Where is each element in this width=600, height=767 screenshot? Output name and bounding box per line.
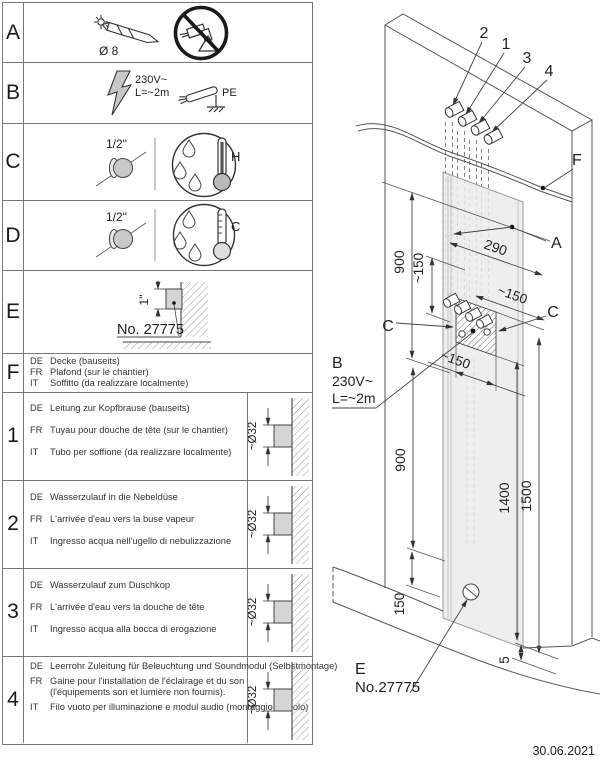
diameter-label: ~Ø32 <box>248 422 259 450</box>
diameter-label: ~Ø32 <box>248 686 259 714</box>
no-power-tool-icon <box>168 4 234 62</box>
lang-de: DE <box>30 403 50 413</box>
wall-hatch <box>181 282 208 337</box>
cable-icon <box>177 85 218 105</box>
lang-it: IT <box>30 624 50 634</box>
dim-900-top: 900 <box>391 250 407 274</box>
row-4-fr2: (l'équipements son et lumière non fourni… <box>50 687 225 697</box>
row-divider <box>2 62 312 63</box>
row-label-1: 1 <box>2 424 24 448</box>
one-inch-label: 1" <box>137 295 151 306</box>
pipe-stub-icon-1: ~Ø32 <box>248 396 310 478</box>
dim-150-top: ~150 <box>411 253 426 283</box>
lang-it: IT <box>30 702 50 712</box>
row-4-fr: Gaine pour l'installation de l'éclairage… <box>50 676 244 686</box>
callout-b-volt: 230V~ <box>332 373 373 389</box>
lang-de: DE <box>30 661 50 671</box>
lang-de: DE <box>30 580 50 590</box>
electric-supply-icon: 230V~ L=~2m PE <box>100 68 250 120</box>
pipe-stub-icon-4: ~Ø32 <box>248 660 310 742</box>
callout-b-length: L=~2m <box>332 390 376 406</box>
drill-diameter-label: Ø 8 <box>99 44 119 58</box>
row-3-de: Wasserzulauf zum Duschkop <box>50 580 170 590</box>
lang-it: IT <box>30 378 50 388</box>
lightning-icon <box>108 71 131 115</box>
pipe-fitting-icon <box>96 152 146 186</box>
callout-3: 3 <box>523 50 532 67</box>
installation-diagram: 2 1 3 4 F A 290 ~150 C <box>310 0 600 767</box>
lang-it: IT <box>30 447 50 457</box>
hot-label: H <box>231 149 240 164</box>
manual-page: A B C D E F 1 2 3 4 Ø 8 <box>0 0 600 767</box>
floor-hatch <box>123 342 211 349</box>
dim-1400: 1400 <box>496 482 512 513</box>
row-1-de: Leitung zur Kopfbrause (bauseits) <box>50 403 190 413</box>
row-label-d: D <box>2 224 24 248</box>
ceiling-anchor-icon: 1" No. 27775 <box>115 280 255 352</box>
pipe-stub-icon-3: ~Ø32 <box>248 572 310 654</box>
callout-a: A <box>551 235 562 252</box>
row-divider <box>2 392 312 393</box>
revision-date: 30.06.2021 <box>480 744 595 758</box>
callout-4: 4 <box>545 63 554 80</box>
callout-e: E <box>355 661 366 678</box>
callout-e-number: No.27775 <box>355 679 420 696</box>
row-2-fr: L'arrivée d'eau vers la buse vapeur <box>50 514 194 524</box>
row-label-3: 3 <box>2 600 24 624</box>
lang-fr: FR <box>30 514 50 524</box>
cold-label: C <box>231 219 240 234</box>
lang-fr: FR <box>30 367 50 377</box>
callout-f: F <box>572 152 582 169</box>
row-label-4: 4 <box>2 688 24 712</box>
callout-1: 1 <box>502 36 511 53</box>
row-divider <box>2 353 312 354</box>
lang-it: IT <box>30 536 50 546</box>
shower-panel <box>443 172 523 648</box>
dim-5: 5 <box>497 656 512 664</box>
pe-label: PE <box>222 87 237 99</box>
row-3-it: Ingresso acqua alla bocca di erogazione <box>50 624 216 634</box>
lang-fr: FR <box>30 602 50 612</box>
row-label-2: 2 <box>2 512 24 536</box>
row-1-it: Tubo per soffione (da realizzare localme… <box>50 447 231 457</box>
fitting-size-label: 1/2" <box>106 210 127 224</box>
row-f-fr: Plafond (sur le chantier) <box>50 367 149 377</box>
row-divider <box>2 270 312 271</box>
row-divider <box>2 568 312 569</box>
row-label-f: F <box>2 361 24 385</box>
diameter-label: ~Ø32 <box>248 598 259 626</box>
row-f-it: Soffitto (da realizzare localmente) <box>50 378 188 388</box>
callout-c-left: C <box>382 318 394 335</box>
row-divider <box>2 480 312 481</box>
part-number-label: No. 27775 <box>117 322 184 338</box>
lang-fr: FR <box>30 676 50 686</box>
cable-length-label: L=~2m <box>135 87 169 99</box>
hot-water-supply-icon: 1/2" H <box>92 128 252 198</box>
fitting-size-label: 1/2" <box>106 137 127 151</box>
row-f-de: Decke (bauseits) <box>50 356 120 366</box>
cold-water-supply-icon: 1/2" C <box>92 201 252 267</box>
dim-900-bottom: 900 <box>392 448 408 472</box>
voltage-label: 230V~ <box>135 74 167 86</box>
lang-de: DE <box>30 492 50 502</box>
pipe-stub-icon-2: ~Ø32 <box>248 484 310 566</box>
drill-bit-icon: Ø 8 <box>85 8 180 58</box>
dim-150-floor: 150 <box>392 593 407 616</box>
row-2-de: Wasserzulauf in die Nebeldüse <box>50 492 178 502</box>
lang-de: DE <box>30 356 50 366</box>
row-1-fr: Tuyau pour douche de tête (sur le chanti… <box>50 425 228 435</box>
lang-fr: FR <box>30 425 50 435</box>
row-label-e: E <box>2 300 24 324</box>
row-2-it: Ingresso acqua nell'ugello di nebulizzaz… <box>50 536 231 546</box>
callout-2: 2 <box>480 25 489 42</box>
row-divider <box>2 123 312 124</box>
callout-b: B <box>332 355 343 372</box>
diameter-label: ~Ø32 <box>248 510 259 538</box>
row-divider <box>2 656 312 657</box>
row-label-c: C <box>2 150 24 174</box>
row-label-a: A <box>2 21 24 45</box>
dim-1500: 1500 <box>518 480 534 511</box>
callout-c-right: C <box>547 304 559 321</box>
pipe-fitting-icon <box>96 223 146 257</box>
row-label-b: B <box>2 81 24 105</box>
row-3-fr: L'arrivée d'eau vers la douche de tête <box>50 602 204 612</box>
